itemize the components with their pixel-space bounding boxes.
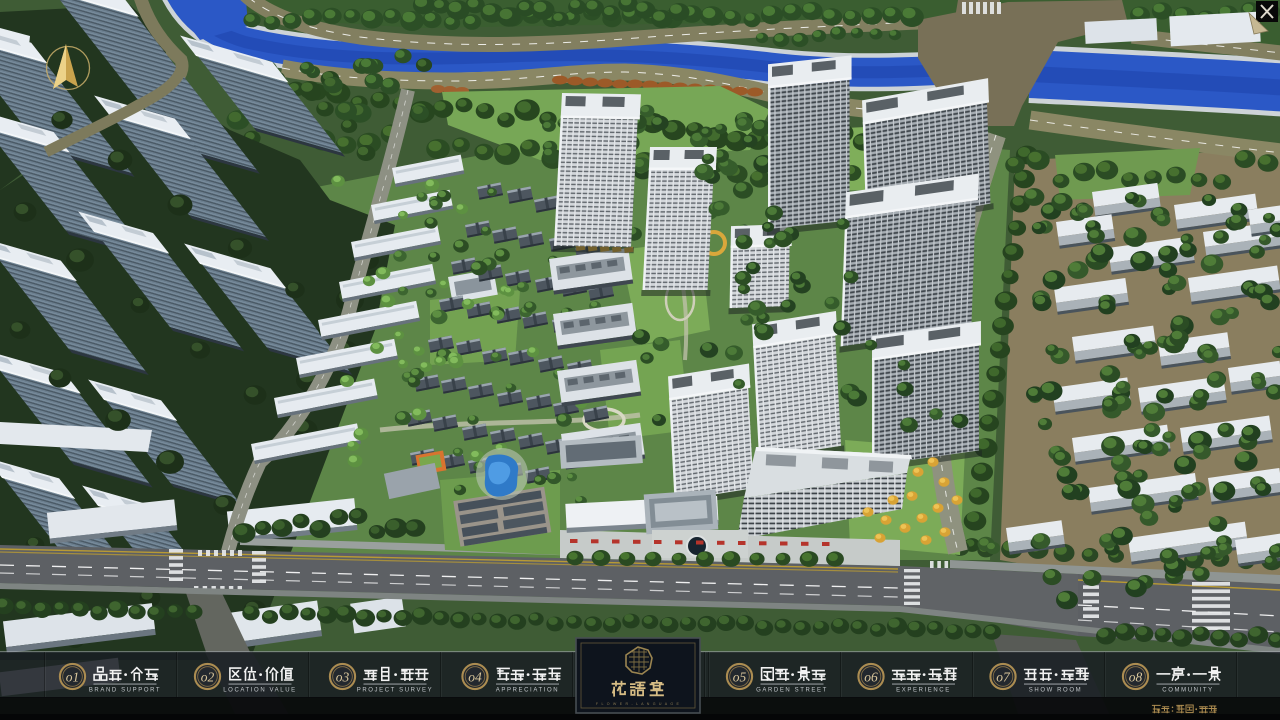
- svg-text:o2: o2: [201, 670, 215, 685]
- svg-text:o6: o6: [864, 670, 878, 685]
- svg-text:APPRECIATION: APPRECIATION: [496, 688, 559, 694]
- svg-text:o3: o3: [336, 670, 350, 685]
- svg-text:o1: o1: [66, 670, 80, 685]
- svg-text:o8: o8: [1129, 670, 1143, 685]
- svg-text:LOCATION VALUE: LOCATION VALUE: [223, 688, 297, 694]
- svg-text:BRAND SUPPORT: BRAND SUPPORT: [89, 688, 161, 694]
- svg-text:o4: o4: [468, 670, 482, 685]
- svg-text:EXPERIENCE: EXPERIENCE: [896, 688, 951, 694]
- svg-text:F L O W E R - L A N G U A G E: F L O W E R - L A N G U A G E: [596, 702, 680, 706]
- svg-text:SHOW ROOM: SHOW ROOM: [1029, 688, 1082, 694]
- svg-text:GARDEN STREET: GARDEN STREET: [756, 688, 828, 694]
- svg-text:PROJECT SURVEY: PROJECT SURVEY: [357, 688, 434, 694]
- svg-text:o7: o7: [996, 670, 1011, 685]
- svg-text:o5: o5: [733, 670, 747, 685]
- svg-text:COMMUNITY: COMMUNITY: [1162, 688, 1213, 694]
